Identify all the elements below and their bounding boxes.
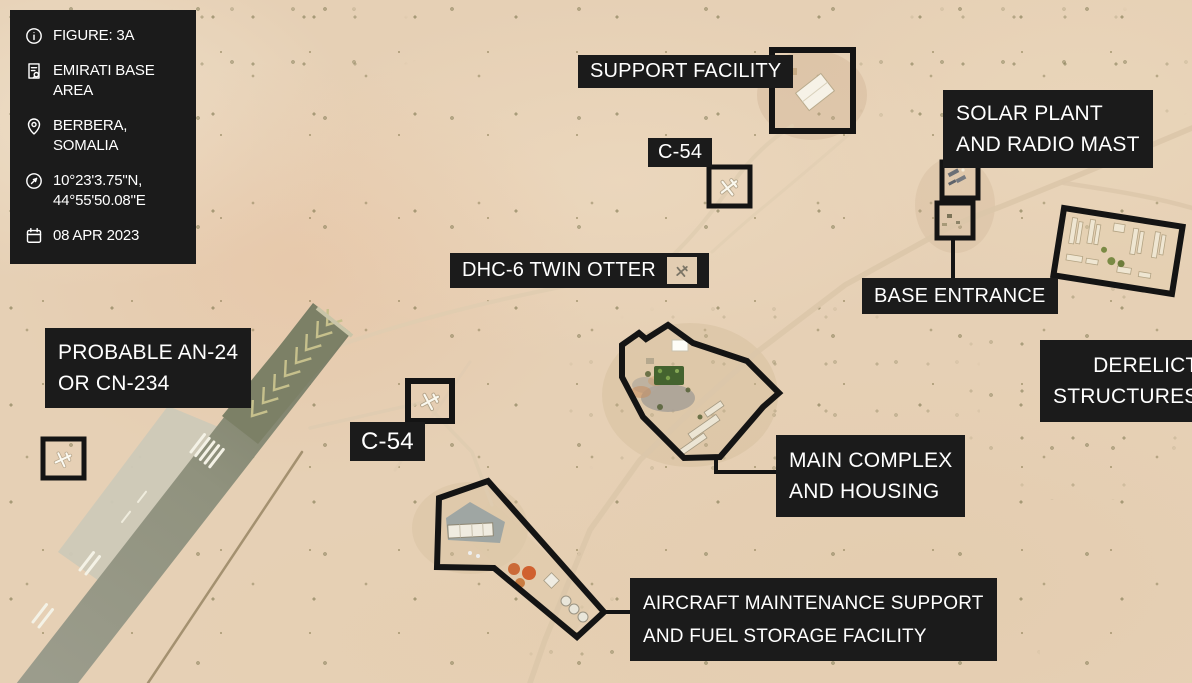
fuel-tank [578, 612, 588, 622]
figure-number: FIGURE: 3A [53, 26, 134, 46]
location-name: BERBERA, SOMALIA [53, 116, 183, 156]
fuel-tank [561, 596, 571, 606]
hangar [448, 523, 494, 538]
date-row: 08 APR 2023 [24, 226, 183, 246]
fuel-tank [508, 563, 520, 575]
location-pin-icon [24, 116, 44, 136]
runway-centerline [122, 492, 146, 522]
dhc6-image-cutout [667, 257, 697, 284]
label-text: MAIN COMPLEX [789, 445, 952, 476]
dhc6-cutout-aircraft [673, 262, 691, 280]
disturbed-ground [915, 157, 995, 253]
main-complex-label: MAIN COMPLEX AND HOUSING [776, 435, 965, 517]
support-facility-label: SUPPORT FACILITY [578, 55, 793, 88]
file-search-icon [24, 61, 44, 81]
tree [645, 371, 651, 377]
tree [1107, 257, 1116, 266]
an24-aircraft [53, 449, 74, 469]
label-text: AIRCRAFT MAINTENANCE SUPPORT [643, 587, 984, 620]
green-compound [654, 366, 684, 385]
storage-pad [544, 573, 560, 589]
base-name: EMIRATI BASE AREA [53, 61, 183, 101]
label-text: SUPPORT FACILITY [590, 60, 781, 83]
dark-track [148, 452, 302, 683]
label-text: AND HOUSING [789, 476, 939, 507]
c54-north-aircraft [717, 175, 741, 199]
label-text: AND FUEL STORAGE FACILITY [643, 620, 927, 653]
image-date: 08 APR 2023 [53, 226, 139, 246]
tree [1117, 260, 1125, 268]
main-complex-leader [716, 458, 777, 472]
label-text: STRUCTURES [1053, 381, 1192, 412]
base-entrance-label: BASE ENTRANCE [862, 278, 1058, 314]
maintenance-fuel-label: AIRCRAFT MAINTENANCE SUPPORT AND FUEL ST… [630, 578, 997, 661]
c54-south-outline [408, 381, 452, 421]
compass-icon [24, 171, 44, 191]
east-road [1064, 183, 1192, 208]
label-text: DERELICT [1093, 350, 1192, 381]
coordinates-lat: 10°23'3.75"N, [53, 171, 146, 191]
coordinates-row: 10°23'3.75"N, 44°55'50.08"E [24, 171, 183, 211]
annotated-satellite-figure: FIGURE: 3A EMIRATI BASE AREA BERBERA, SO… [0, 0, 1192, 683]
an24-outline [43, 439, 84, 478]
support-facility-building [796, 73, 835, 110]
apron [58, 406, 250, 600]
tree [698, 415, 703, 420]
base-name-row: EMIRATI BASE AREA [24, 61, 183, 101]
probable-aircraft-label: PROBABLE AN-24 OR CN-234 [45, 328, 251, 408]
c54-north-label: C-54 [648, 138, 712, 167]
runway-chevrons [252, 309, 342, 416]
fuel-tank [569, 604, 579, 614]
base-entrance-outline [937, 203, 973, 238]
taxi-track-north [320, 126, 792, 352]
disturbed-ground [468, 500, 595, 632]
derelict-outline [1053, 208, 1182, 294]
maintenance-outline [437, 481, 604, 637]
c54-south-label: C-54 [350, 422, 425, 461]
base-entrance-structures [942, 214, 960, 226]
disturbed-ground [602, 323, 778, 467]
tree [1101, 246, 1108, 253]
runway-end-cap [317, 308, 352, 336]
solar-plant-label: SOLAR PLANT AND RADIO MAST [943, 90, 1153, 168]
coordinates-lon: 44°55'50.08"E [53, 191, 146, 211]
coordinates: 10°23'3.75"N, 44°55'50.08"E [53, 171, 146, 211]
solar-plant [948, 168, 967, 185]
main-complex-outline [622, 325, 779, 458]
derelict-structures-label: DERELICT STRUCTURES [1040, 340, 1192, 422]
maintenance-fuel-structures [446, 502, 588, 622]
main-complex-buildings [631, 340, 724, 455]
fuel-tank [522, 566, 536, 580]
disturbed-ground [412, 482, 528, 574]
label-text: OR CN-234 [58, 368, 170, 399]
white-building [672, 340, 688, 351]
c54-south-aircraft [418, 390, 441, 413]
label-text: PROBABLE AN-24 [58, 337, 238, 368]
dhc6-label: DHC-6 TWIN OTTER [450, 253, 709, 288]
tree [657, 404, 663, 410]
label-text: C-54 [361, 428, 414, 456]
info-icon [24, 26, 44, 46]
paved-area [446, 502, 505, 543]
tree [686, 388, 691, 393]
label-text: BASE ENTRANCE [874, 285, 1046, 308]
label-text: SOLAR PLANT [956, 98, 1103, 129]
fuel-tank [515, 578, 525, 588]
label-text: C-54 [658, 141, 702, 164]
figure-info-panel: FIGURE: 3A EMIRATI BASE AREA BERBERA, SO… [10, 10, 196, 264]
calendar-icon [24, 226, 44, 246]
figure-number-row: FIGURE: 3A [24, 26, 183, 46]
disturbed-ground [1053, 208, 1182, 294]
location-row: BERBERA, SOMALIA [24, 116, 183, 156]
label-text: DHC-6 TWIN OTTER [462, 259, 656, 282]
label-text: AND RADIO MAST [956, 129, 1140, 160]
runway-threshold-markings [33, 435, 223, 627]
c54-north-outline [709, 167, 750, 206]
derelict-buildings [1065, 217, 1166, 280]
track [712, 131, 853, 252]
